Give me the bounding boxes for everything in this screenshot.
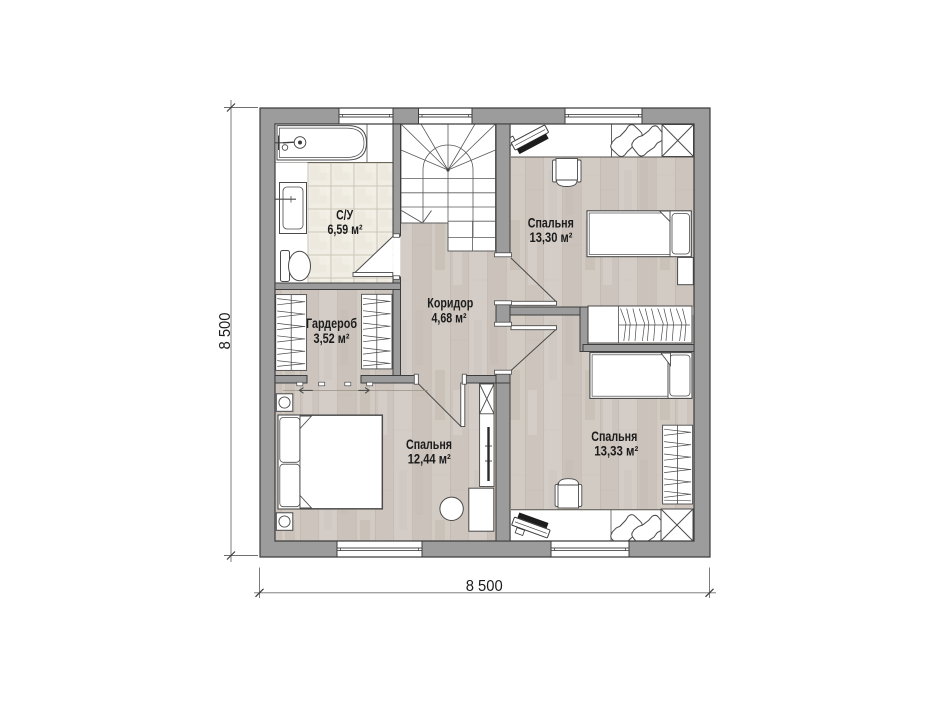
svg-text:13,30 м²: 13,30 м² bbox=[530, 230, 573, 245]
svg-text:Спальня: Спальня bbox=[406, 437, 452, 452]
svg-text:8 500: 8 500 bbox=[466, 578, 503, 595]
svg-text:Коридор: Коридор bbox=[427, 296, 473, 311]
svg-text:Гардероб: Гардероб bbox=[306, 316, 357, 331]
svg-text:С/У: С/У bbox=[336, 208, 353, 223]
svg-text:8 500: 8 500 bbox=[217, 312, 234, 349]
svg-text:Спальня: Спальня bbox=[591, 429, 637, 444]
svg-text:12,44 м²: 12,44 м² bbox=[408, 451, 451, 466]
svg-text:Спальня: Спальня bbox=[528, 215, 574, 230]
svg-text:3,52 м²: 3,52 м² bbox=[314, 331, 350, 346]
svg-text:4,68 м²: 4,68 м² bbox=[432, 310, 467, 325]
svg-text:13,33 м²: 13,33 м² bbox=[594, 444, 638, 459]
svg-text:6,59 м²: 6,59 м² bbox=[328, 222, 363, 237]
